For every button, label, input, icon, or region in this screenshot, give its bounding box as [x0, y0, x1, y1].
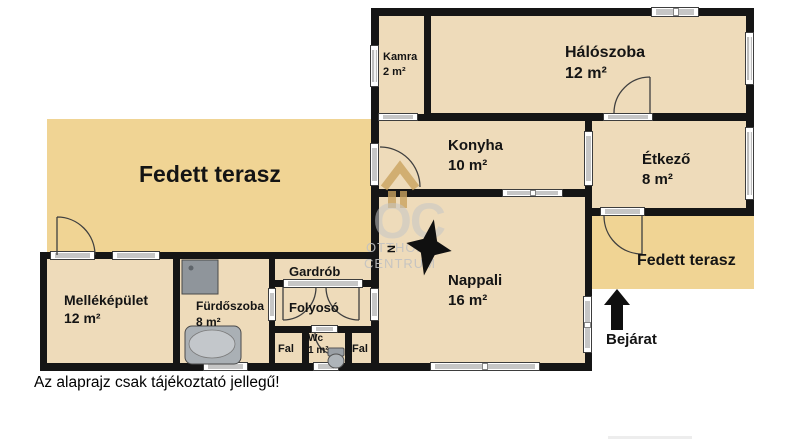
room-label-haloszoba: Hálószoba 12 m²: [565, 42, 645, 84]
shower-icon: [182, 260, 218, 294]
room-area: 1 m²: [308, 345, 329, 357]
entrance-arrow-icon: [604, 289, 630, 330]
room-label-terrace-left: Fedett terasz: [139, 159, 281, 189]
room-label-furdoszoba: Fürdőszoba 8 m²: [196, 299, 264, 331]
room-area: 2 m²: [383, 65, 417, 80]
room-label-fal-right: Fal: [352, 342, 368, 357]
door-arc: [57, 217, 95, 255]
room-name: Étkező: [642, 150, 690, 170]
room-name: Hálószoba: [565, 42, 645, 63]
entrance-label: Bejárat: [606, 330, 657, 350]
room-area: 8 m²: [196, 315, 264, 331]
compass-north-label: N: [386, 245, 398, 253]
room-name: Melléképület: [64, 291, 148, 309]
room-label-terrace-right: Fedett terasz: [637, 250, 736, 271]
room-name: Nappali: [448, 271, 502, 291]
room-area: 16 m²: [448, 291, 502, 311]
room-name: Folyosó: [289, 299, 339, 316]
room-area: 10 m²: [448, 156, 503, 176]
room-area: 12 m²: [64, 309, 148, 327]
room-name: Fürdőszoba: [196, 299, 264, 315]
room-area: 8 m²: [642, 170, 690, 190]
floor-plan: OC OTTHON CENTRUM N: [0, 0, 800, 439]
room-label-folyoso: Folyosó: [289, 299, 339, 316]
room-label-mellekepulet: Melléképület 12 m²: [64, 291, 148, 328]
toilet-icon: [328, 348, 344, 368]
room-label-konyha: Konyha 10 m²: [448, 136, 503, 176]
room-name: Konyha: [448, 136, 503, 156]
disclaimer-text: Az alaprajz csak tájékoztató jellegű!: [34, 373, 280, 393]
room-name: Fedett terasz: [139, 159, 281, 189]
room-label-fal-left: Fal: [278, 342, 294, 357]
room-name: Wc: [308, 333, 329, 345]
room-name: Fal: [352, 342, 368, 357]
room-label-etkezo: Étkező 8 m²: [642, 150, 690, 190]
room-name: Fal: [278, 342, 294, 357]
room-name: Kamra: [383, 50, 417, 65]
bathtub-icon: [185, 326, 241, 364]
room-label-kamra: Kamra 2 m²: [383, 50, 417, 79]
room-name: Gardrób: [289, 263, 340, 280]
room-label-gardrob: Gardrób: [289, 263, 340, 280]
room-name: Fedett terasz: [637, 250, 736, 271]
room-label-wc: Wc 1 m²: [308, 333, 329, 357]
room-area: 12 m²: [565, 63, 645, 84]
entrance-text: Bejárat: [606, 330, 657, 350]
door-arc: [604, 216, 642, 254]
watermark-house-icon: [384, 167, 416, 188]
room-label-nappali: Nappali 16 m²: [448, 271, 502, 311]
